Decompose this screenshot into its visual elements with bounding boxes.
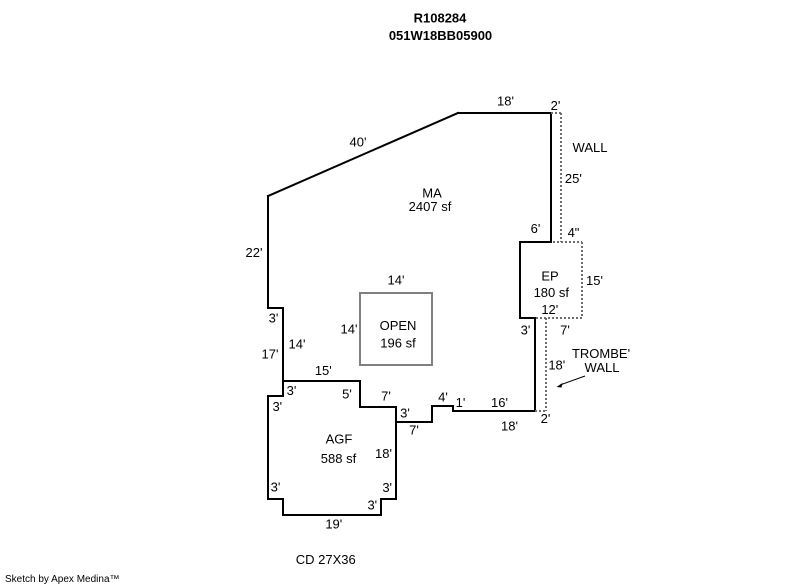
svg-text:2': 2' xyxy=(551,98,561,113)
svg-text:EP: EP xyxy=(541,269,558,284)
svg-text:12': 12' xyxy=(541,302,558,317)
svg-text:16': 16' xyxy=(491,395,508,410)
svg-text:2407 sf: 2407 sf xyxy=(409,199,452,214)
svg-text:TROMBE': TROMBE' xyxy=(572,346,630,361)
svg-text:051W18BB05900: 051W18BB05900 xyxy=(389,28,492,43)
svg-text:180 sf: 180 sf xyxy=(534,285,570,300)
svg-text:19': 19' xyxy=(325,517,342,532)
svg-text:7': 7' xyxy=(560,323,570,338)
svg-text:22': 22' xyxy=(246,245,263,260)
svg-text:15': 15' xyxy=(586,273,603,288)
svg-text:6': 6' xyxy=(531,221,541,236)
svg-text:WALL: WALL xyxy=(573,140,608,155)
svg-text:17': 17' xyxy=(262,347,279,362)
svg-text:196 sf: 196 sf xyxy=(380,336,416,351)
svg-text:4": 4" xyxy=(568,225,580,240)
svg-text:3': 3' xyxy=(287,383,297,398)
svg-text:7': 7' xyxy=(409,423,419,438)
svg-text:CD 27X36: CD 27X36 xyxy=(296,552,356,567)
svg-text:14': 14' xyxy=(388,273,405,288)
svg-text:14': 14' xyxy=(289,337,306,352)
svg-text:15': 15' xyxy=(315,363,332,378)
svg-text:5': 5' xyxy=(342,387,352,402)
svg-text:OPEN: OPEN xyxy=(380,318,417,333)
svg-text:4': 4' xyxy=(438,390,448,405)
svg-text:3': 3' xyxy=(271,480,281,495)
svg-text:2': 2' xyxy=(541,411,551,426)
svg-text:3': 3' xyxy=(400,406,410,421)
svg-text:18': 18' xyxy=(497,94,514,109)
svg-text:1': 1' xyxy=(456,395,466,410)
svg-text:3': 3' xyxy=(272,399,282,414)
svg-text:588 sf: 588 sf xyxy=(321,451,357,466)
svg-text:25': 25' xyxy=(565,171,582,186)
svg-text:3': 3' xyxy=(521,323,531,338)
svg-text:18': 18' xyxy=(375,446,392,461)
svg-text:3': 3' xyxy=(367,498,377,513)
svg-text:AGF: AGF xyxy=(326,432,353,447)
svg-text:WALL: WALL xyxy=(585,360,620,375)
svg-text:7': 7' xyxy=(381,389,391,404)
svg-text:18': 18' xyxy=(501,419,518,434)
svg-text:40': 40' xyxy=(350,135,367,150)
svg-text:14': 14' xyxy=(341,322,358,337)
svg-text:18': 18' xyxy=(548,358,565,373)
svg-text:R108284: R108284 xyxy=(414,11,468,26)
svg-text:3': 3' xyxy=(269,311,279,326)
svg-text:3': 3' xyxy=(382,480,392,495)
svg-text:Sketch by Apex Medina™: Sketch by Apex Medina™ xyxy=(5,574,120,585)
